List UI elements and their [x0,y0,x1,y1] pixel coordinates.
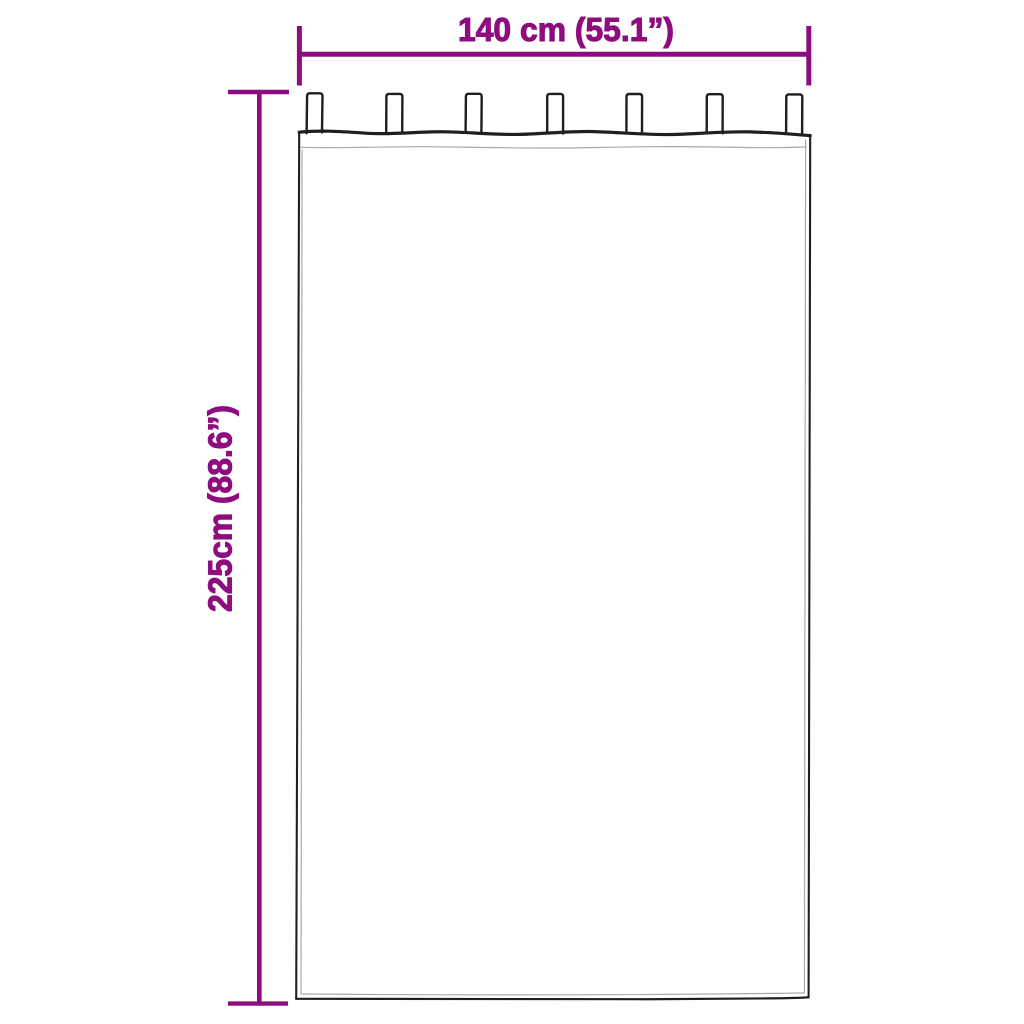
svg-text:225cm (88.6”): 225cm (88.6”) [203,405,240,612]
svg-text:140 cm (55.1”): 140 cm (55.1”) [458,12,674,49]
